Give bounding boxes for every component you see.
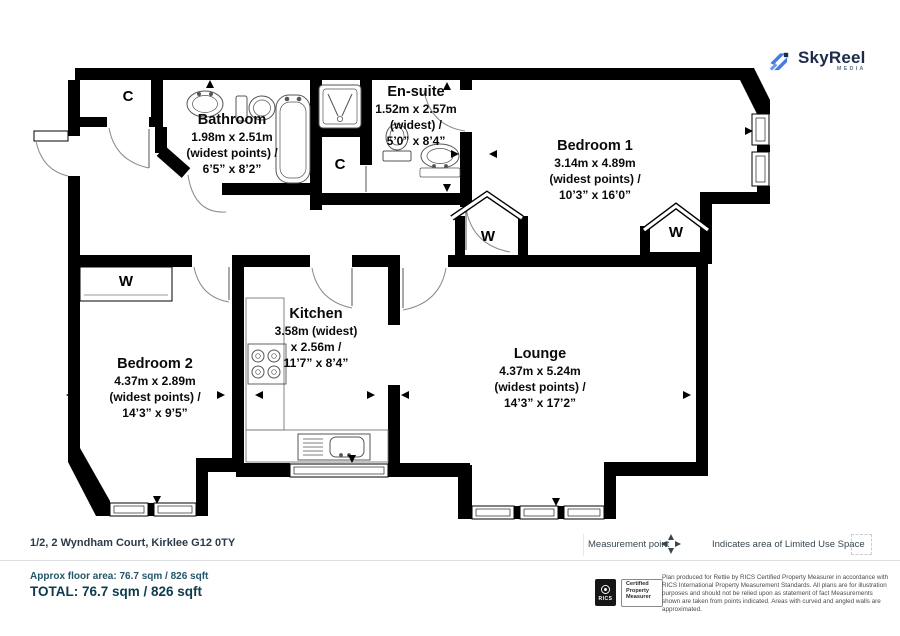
room-dim: 14’3” x 9’5” bbox=[75, 405, 235, 421]
room-dim: 4.37m x 5.24m bbox=[455, 363, 625, 379]
plan-disclaimer: Plan produced for Rettie by RICS Certifi… bbox=[662, 574, 892, 614]
footer-divider bbox=[0, 560, 900, 561]
wardrobe-label-bedroom1: W bbox=[662, 224, 690, 241]
room-label-lounge: Lounge 4.37m x 5.24m (widest points) / 1… bbox=[455, 346, 625, 411]
kitchen-sink-icon bbox=[298, 434, 370, 460]
room-dim: 3.14m x 4.89m bbox=[500, 155, 690, 171]
logo-name: SkyReel bbox=[798, 49, 866, 67]
lounge-bay-windows-icon bbox=[472, 506, 604, 519]
room-dim: 3.58m (widest) bbox=[246, 323, 386, 339]
closet-label-hall-top: C bbox=[114, 88, 142, 105]
room-dim: 6’5” x 8’2” bbox=[157, 161, 307, 177]
room-dim: (widest points) / bbox=[500, 171, 690, 187]
room-dim: (widest points) / bbox=[157, 145, 307, 161]
total-floor-area: TOTAL: 76.7 sqm / 826 sqft bbox=[30, 584, 202, 599]
approx-floor-area: Approx floor area: 76.7 sqm / 826 sqft bbox=[30, 571, 208, 582]
limited-use-swatch-icon bbox=[851, 534, 872, 555]
room-dim: 11’7” x 8’4” bbox=[246, 355, 386, 371]
room-dim: (widest) / bbox=[356, 117, 476, 133]
room-dim: 4.37m x 2.89m bbox=[75, 373, 235, 389]
room-name: Bedroom 1 bbox=[500, 138, 690, 155]
legend-separator bbox=[583, 534, 584, 556]
cert-line: Measurer bbox=[626, 594, 662, 601]
room-label-kitchen: Kitchen 3.58m (widest) x 2.56m / 11’7” x… bbox=[246, 306, 386, 371]
property-address: 1/2, 2 Wyndham Court, Kirklee G12 0TY bbox=[30, 537, 235, 549]
room-dim: 14’3” x 17’2” bbox=[455, 395, 625, 411]
legend-measurement-point: Measurement point bbox=[588, 539, 669, 550]
room-label-ensuite: En-suite 1.52m x 2.57m (widest) / 5’0” x… bbox=[356, 84, 476, 149]
rics-label: RICS bbox=[599, 596, 613, 602]
legend-limited-use: Indicates area of Limited Use Space bbox=[712, 539, 865, 550]
room-name: Bathroom bbox=[157, 112, 307, 129]
room-dim: (widest points) / bbox=[75, 389, 235, 405]
rics-logo: RICS bbox=[595, 579, 616, 606]
room-label-bedroom1: Bedroom 1 3.14m x 4.89m (widest points) … bbox=[500, 138, 690, 203]
room-label-bathroom: Bathroom 1.98m x 2.51m (widest points) /… bbox=[157, 112, 307, 177]
bathroom-door bbox=[188, 175, 226, 212]
room-name: Bedroom 2 bbox=[75, 356, 235, 373]
bedroom2-bay-windows-icon bbox=[110, 503, 196, 516]
closet-label-mid: C bbox=[326, 156, 354, 173]
room-name: En-suite bbox=[356, 84, 476, 101]
room-label-bedroom2: Bedroom 2 4.37m x 2.89m (widest points) … bbox=[75, 356, 235, 421]
room-dim: 1.52m x 2.57m bbox=[356, 101, 476, 117]
cert-line: Certified bbox=[626, 581, 662, 588]
skyreel-logo-icon bbox=[766, 49, 792, 75]
floorplan-page: Bathroom 1.98m x 2.51m (widest points) /… bbox=[0, 0, 900, 636]
kitchen-window-icon bbox=[290, 464, 388, 477]
shower-icon bbox=[319, 85, 361, 128]
room-name: Lounge bbox=[455, 346, 625, 363]
wardrobe-label-bedroom2: W bbox=[112, 273, 140, 290]
bedroom2-door bbox=[194, 267, 229, 302]
room-name: Kitchen bbox=[246, 306, 386, 323]
wardrobe-label-hall: W bbox=[474, 228, 502, 245]
room-dim: x 2.56m / bbox=[246, 339, 386, 355]
room-dim: 5’0” x 8’4” bbox=[356, 133, 476, 149]
certified-property-measurer-box: Certified Property Measurer bbox=[621, 579, 663, 607]
kitchen-door bbox=[312, 268, 352, 308]
lounge-door bbox=[403, 268, 446, 310]
entrance-door bbox=[34, 131, 68, 176]
room-dim: (widest points) / bbox=[455, 379, 625, 395]
skyreel-logo: SkyReel MEDIA bbox=[766, 49, 866, 75]
closet-hall-door bbox=[109, 128, 149, 168]
room-dim: 1.98m x 2.51m bbox=[157, 129, 307, 145]
skyreel-logo-text: SkyReel MEDIA bbox=[798, 49, 866, 72]
rics-emblem-icon bbox=[600, 584, 611, 595]
room-dim: 10’3” x 16’0” bbox=[500, 187, 690, 203]
cert-line: Property bbox=[626, 588, 662, 595]
